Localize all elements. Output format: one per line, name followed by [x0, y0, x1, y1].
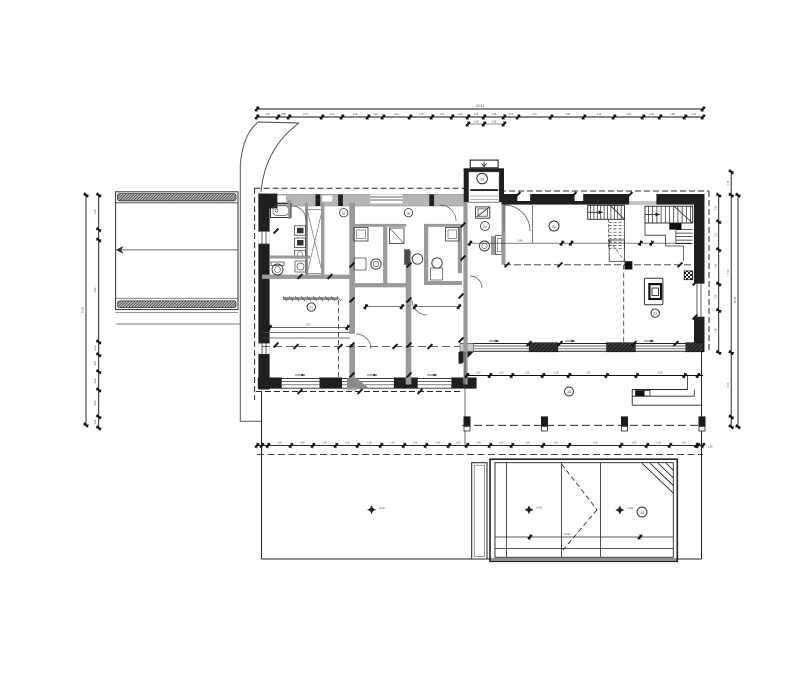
svg-text:2.26: 2.26: [509, 114, 514, 116]
svg-text:1.00: 1.00: [593, 443, 598, 445]
svg-text:23: 23: [653, 312, 657, 316]
svg-text:1.10: 1.10: [373, 114, 378, 116]
svg-text:1.00: 1.00: [367, 443, 372, 445]
svg-text:1.86: 1.86: [670, 114, 675, 116]
svg-text:1.00: 1.00: [435, 443, 440, 445]
svg-text:1.00: 1.00: [476, 372, 481, 375]
svg-text:1.90: 1.90: [649, 114, 654, 116]
svg-text:1.56: 1.56: [715, 328, 717, 333]
svg-text:+0.00: +0.00: [627, 507, 634, 510]
svg-text:1.00: 1.00: [345, 443, 350, 445]
svg-text:+0.00: +0.00: [379, 507, 386, 510]
svg-text:2.10: 2.10: [394, 114, 399, 116]
svg-text:0.93: 0.93: [94, 400, 97, 405]
svg-text:3.53: 3.53: [94, 287, 97, 292]
svg-text:1.00: 1.00: [413, 443, 418, 445]
svg-text:12.00: 12.00: [564, 533, 571, 536]
svg-text:1.35: 1.35: [525, 372, 530, 375]
svg-text:1.08: 1.08: [492, 121, 497, 124]
svg-text:1.30: 1.30: [626, 114, 631, 116]
svg-text:14: 14: [640, 511, 644, 515]
svg-text:8.10: 8.10: [81, 307, 85, 313]
svg-text:1.00: 1.00: [300, 443, 305, 445]
svg-text:0.76: 0.76: [728, 180, 730, 185]
svg-text:1.50: 1.50: [440, 114, 445, 116]
svg-text:10.33: 10.33: [734, 296, 737, 303]
svg-text:1.10: 1.10: [554, 372, 559, 375]
svg-text:13: 13: [567, 390, 571, 394]
svg-text:1.00: 1.00: [632, 443, 637, 445]
svg-text:1.00: 1.00: [277, 443, 282, 445]
svg-text:1.55: 1.55: [265, 114, 270, 116]
svg-text:1.05: 1.05: [492, 114, 497, 116]
svg-text:2.26: 2.26: [708, 447, 713, 449]
svg-text:01: 01: [310, 306, 314, 310]
svg-text:0.61: 0.61: [94, 360, 97, 365]
svg-text:1.25: 1.25: [474, 114, 479, 116]
svg-text:1.00: 1.00: [499, 443, 504, 445]
svg-text:1.50: 1.50: [330, 114, 335, 116]
svg-text:20.34: 20.34: [476, 104, 484, 108]
svg-text:0.35: 0.35: [94, 419, 97, 424]
svg-text:1.00: 1.00: [656, 443, 661, 445]
svg-text:06: 06: [407, 211, 411, 215]
svg-text:1.42: 1.42: [715, 263, 717, 268]
svg-text:2.10: 2.10: [728, 382, 730, 387]
svg-text:02: 02: [552, 225, 556, 229]
svg-text:1.45: 1.45: [94, 209, 97, 214]
svg-text:2.30: 2.30: [565, 114, 570, 116]
svg-text:+0.00: +0.00: [536, 507, 543, 510]
svg-text:2.90: 2.90: [306, 324, 311, 327]
svg-text:1.96: 1.96: [353, 114, 358, 116]
svg-text:2.16: 2.16: [597, 114, 602, 116]
svg-text:0.85: 0.85: [281, 114, 286, 116]
svg-text:21: 21: [483, 225, 487, 229]
svg-text:1.36: 1.36: [715, 294, 717, 299]
svg-text:0.40: 0.40: [94, 345, 97, 350]
svg-text:1.20: 1.20: [458, 114, 463, 116]
svg-text:1.00: 1.00: [476, 443, 481, 445]
svg-text:1.00: 1.00: [499, 372, 504, 375]
svg-text:1.00: 1.00: [322, 443, 327, 445]
svg-text:1.97: 1.97: [303, 114, 308, 116]
svg-text:1.00: 1.00: [554, 443, 559, 445]
svg-text:0.90: 0.90: [715, 205, 717, 210]
svg-text:1.41: 1.41: [692, 114, 697, 116]
svg-text:0.60: 0.60: [94, 378, 97, 383]
svg-text:5.88: 5.88: [518, 239, 523, 242]
svg-text:2.47: 2.47: [532, 114, 537, 116]
svg-text:05: 05: [342, 211, 346, 215]
svg-text:1.00: 1.00: [525, 443, 530, 445]
svg-text:1.00: 1.00: [682, 443, 687, 445]
svg-text:5.12: 5.12: [728, 269, 730, 274]
svg-text:1.00: 1.00: [456, 443, 461, 445]
svg-text:1.75: 1.75: [419, 114, 424, 116]
svg-text:2.08: 2.08: [658, 372, 663, 375]
svg-text:1.66: 1.66: [586, 372, 591, 375]
svg-text:13: 13: [480, 177, 484, 181]
svg-text:1.21: 1.21: [715, 232, 717, 237]
svg-text:1.00: 1.00: [390, 443, 395, 445]
svg-text:1.08: 1.08: [474, 121, 479, 124]
